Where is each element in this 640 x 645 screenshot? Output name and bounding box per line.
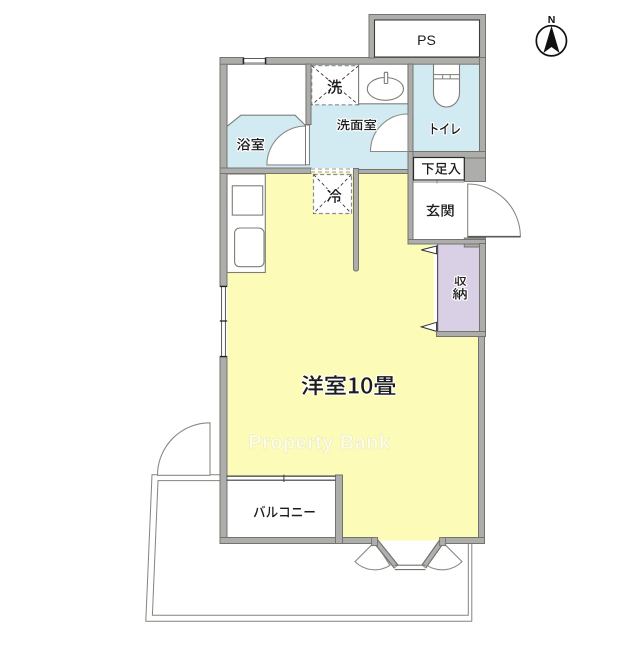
svg-text:PS: PS bbox=[417, 32, 436, 48]
svg-text:Property Bank: Property Bank bbox=[248, 432, 390, 454]
svg-text:N: N bbox=[548, 14, 556, 26]
